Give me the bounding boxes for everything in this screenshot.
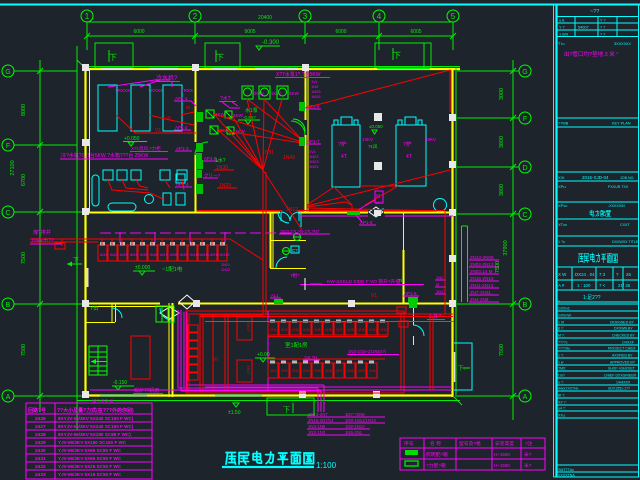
svg-text:2N13-2N7: 2N13-2N7 xyxy=(308,412,328,417)
svg-text:1:足2??: 1:足2?? xyxy=(583,295,601,301)
svg-text:2N11-2N13: 2N11-2N13 xyxy=(470,283,494,288)
svg-text:??大小及量?力式(在???外的你别): ??大小及量?力式(在???外的你别) xyxy=(57,407,134,414)
svg-text:7500: 7500 xyxy=(21,252,27,264)
svg-text:YJV-06/3KV 5X25 SC50 F WC: YJV-06/3KV 5X25 SC50 F WC xyxy=(58,464,122,469)
svg-text:1H10: 1H10 xyxy=(369,328,378,332)
svg-text:AH7: AH7 xyxy=(160,253,167,257)
svg-text:AH10: AH10 xyxy=(190,253,200,257)
svg-text:1N8-1N11/1N13: 1N8-1N11/1N13 xyxy=(345,418,376,423)
svg-text:1N?L2?L?N-2?L?N7: 1N?L2?L?N-2?L?N7 xyxy=(280,229,320,234)
svg-text:GXXnd:: GXXnd: xyxy=(558,307,570,311)
svg-text:XR1T: XR1T xyxy=(246,322,250,332)
svg-text:2430: 2430 xyxy=(35,448,46,454)
svg-text:2H1: 2H1 xyxy=(270,369,277,373)
svg-text:7 <: 7 < xyxy=(599,283,606,288)
svg-text:1N9-1N10: 1N9-1N10 xyxy=(345,424,365,429)
svg-text:AP1-2: AP1-2 xyxy=(175,125,188,130)
svg-text:1 : 100: 1 : 100 xyxy=(577,283,591,288)
svg-text:X W: X W xyxy=(558,272,567,277)
svg-text:A: A xyxy=(6,394,11,401)
svg-text:M?: M? xyxy=(376,200,382,205)
svg-text:DESIGNED BY: DESIGNED BY xyxy=(610,321,635,325)
svg-text:26: 26 xyxy=(626,272,631,277)
svg-text:1N3-2/16+2(1N54?): 1N3-2/16+2(1N54?) xyxy=(348,349,387,354)
svg-text:H+1500: H+1500 xyxy=(494,452,510,457)
svg-text:米?: 米? xyxy=(524,462,532,469)
svg-text:????Au: ????Au xyxy=(558,347,570,351)
svg-text:1N7-?2N8: 1N7-?2N8 xyxy=(345,412,365,417)
svg-text:M ?:: M ?: xyxy=(558,334,565,338)
svg-text:PXXUR TXX: PXXUR TXX xyxy=(608,185,629,189)
svg-text:2N4-2N8: 2N4-2N8 xyxy=(470,297,489,302)
svg-text:煤?排井: 煤?排井 xyxy=(33,229,51,236)
svg-text:1N5-2N1: 1N5-2N1 xyxy=(345,430,363,435)
svg-text:8XYJV-06/3KV 5X180 SC88 F WC): 8XYJV-06/3KV 5X180 SC88 F WC) xyxy=(58,432,131,437)
svg-text:?水?: ?水? xyxy=(220,95,231,102)
svg-text:照明配?箱: 照明配?箱 xyxy=(426,451,448,458)
svg-text:37900: 37900 xyxy=(503,240,509,255)
svg-text:1N2: 1N2 xyxy=(436,275,444,280)
svg-text:XPu: XPu xyxy=(558,184,566,189)
svg-text:1:100: 1:100 xyxy=(316,461,337,470)
svg-text:-XXXXXIN: -XXXXXIN xyxy=(608,204,625,208)
svg-text:2H7: 2H7 xyxy=(336,369,343,373)
svg-text:±0.000: ±0.000 xyxy=(135,265,150,271)
svg-text:20400: 20400 xyxy=(258,15,272,21)
svg-text:AH9: AH9 xyxy=(180,253,187,257)
svg-text:AH3: AH3 xyxy=(120,253,127,257)
svg-text:2H6: 2H6 xyxy=(325,369,332,373)
svg-text:5KW: 5KW xyxy=(289,91,300,96)
svg-text:~1配1电: ~1配1电 xyxy=(162,265,183,273)
svg-text:8000: 8000 xyxy=(21,104,27,116)
svg-text:AXXFIED BY: AXXFIED BY xyxy=(612,354,633,358)
svg-text:XXu:: XXu: xyxy=(558,414,566,418)
svg-text:AP1-1: AP1-1 xyxy=(175,96,188,101)
svg-text:T Iu: T Iu xyxy=(558,42,564,46)
svg-text:1 9t: 1 9t xyxy=(558,321,564,325)
svg-text:AH4: AH4 xyxy=(130,253,137,257)
svg-text:????c: ????c xyxy=(558,341,568,345)
svg-text:回路?号: 回路?号 xyxy=(28,407,46,414)
svg-text:5KW: 5KW xyxy=(233,113,244,118)
svg-text:1N26: 1N26 xyxy=(311,94,321,99)
svg-text:2431: 2431 xyxy=(35,456,46,462)
svg-text:± 8: ± 8 xyxy=(559,19,564,23)
svg-text:2427: 2427 xyxy=(35,424,46,430)
svg-text:1VL?H: 1VL?H xyxy=(304,355,317,360)
svg-text:CHXXF: CHXXF xyxy=(622,341,634,345)
svg-text:AH11: AH11 xyxy=(200,253,209,257)
svg-text:1H4: 1H4 xyxy=(303,328,310,332)
svg-text:2N02-2N13: 2N02-2N13 xyxy=(470,262,494,267)
svg-text:1H9: 1H9 xyxy=(358,328,365,332)
svg-text:1H3: 1H3 xyxy=(292,328,299,332)
svg-text:XXXXTNA: XXXXTNA xyxy=(558,474,575,478)
svg-text:XR2T: XR2T xyxy=(246,365,250,375)
svg-text:M: M xyxy=(436,282,439,287)
svg-text:M: M xyxy=(186,105,190,110)
svg-text:名 称: 名 称 xyxy=(430,440,441,447)
svg-text:2H2: 2H2 xyxy=(281,369,288,373)
svg-text:6700: 6700 xyxy=(21,174,27,186)
svg-text:2H5: 2H5 xyxy=(314,369,321,373)
svg-text:下: 下 xyxy=(73,257,79,264)
svg-text:13KV: 13KV xyxy=(362,137,373,142)
svg-text:?B: ?B xyxy=(398,278,404,283)
svg-text:1H11: 1H11 xyxy=(380,328,388,332)
svg-text:AP1-4: AP1-4 xyxy=(176,182,189,187)
svg-text:2: 2 xyxy=(193,12,198,21)
svg-text:TMX:: TMX: xyxy=(558,367,566,371)
svg-text:u ?:: u ?: xyxy=(558,381,564,385)
svg-text:2N03.14 M: 2N03.14 M xyxy=(470,269,493,274)
svg-text:1N4-1N5: 1N4-1N5 xyxy=(308,424,326,429)
svg-text:1H8: 1H8 xyxy=(347,328,354,332)
svg-text:AH1: AH1 xyxy=(100,253,107,257)
svg-text:±1.50: ±1.50 xyxy=(228,410,241,416)
svg-text:2H3: 2H3 xyxy=(292,369,299,373)
svg-text:序号: 序号 xyxy=(404,440,414,447)
svg-text:DXXWXX TITLE: DXXWXX TITLE xyxy=(612,240,639,244)
svg-text:8XYJV-06/3KV 5X240 SC150 F WC): 8XYJV-06/3KV 5X240 SC150 F WC) xyxy=(58,416,134,421)
svg-text:X?7水泵1?,?台5KW: X?7水泵1?,?台5KW xyxy=(276,71,321,78)
svg-text:V1: V1 xyxy=(371,293,377,299)
svg-text:?炉: ?炉 xyxy=(403,140,412,148)
svg-text:YJV-06/3KV 5X95 SC80 F WC: YJV-06/3KV 5X95 SC80 F WC xyxy=(58,448,122,453)
svg-text:2N16-2N15: 2N16-2N15 xyxy=(470,276,494,281)
svg-text:JOB NO.: JOB NO. xyxy=(620,176,634,180)
svg-text:GXXnW:: GXXnW: xyxy=(558,314,572,318)
svg-text:4: 4 xyxy=(377,12,382,21)
svg-text:C: C xyxy=(522,212,527,219)
svg-text:?注: ?注 xyxy=(525,440,533,447)
svg-text:B: B xyxy=(6,302,11,309)
svg-text:YJV-06/3KV 5X150 SC150 F WC: YJV-06/3KV 5X150 SC150 F WC xyxy=(58,440,127,445)
svg-text:F: F xyxy=(523,116,527,123)
svg-text:±0.050: ±0.050 xyxy=(369,124,383,129)
svg-text:54007: 54007 xyxy=(578,26,589,30)
svg-text:1 ?:: 1 ?: xyxy=(558,354,564,358)
svg-text:2H4: 2H4 xyxy=(303,369,310,373)
svg-text:1N12: 1N12 xyxy=(286,207,298,213)
svg-text:2015-XJD-04: 2015-XJD-04 xyxy=(582,175,609,180)
svg-text:AH8: AH8 xyxy=(170,253,177,257)
svg-text:VI: VI xyxy=(166,116,171,122)
svg-text:A: A xyxy=(523,394,528,401)
svg-text:VI: VI xyxy=(213,357,218,363)
svg-text:9005: 9005 xyxy=(244,29,255,35)
svg-text:4T: 4T xyxy=(406,154,412,160)
svg-text:t:m?: t:m? xyxy=(558,374,565,378)
svg-text:AH5: AH5 xyxy=(140,253,147,257)
svg-text:8 ?:: 8 ?: xyxy=(558,327,564,331)
svg-text:A #: A # xyxy=(558,283,565,288)
svg-text:1H7: 1H7 xyxy=(336,328,343,332)
svg-text:2N7-2N31: 2N7-2N31 xyxy=(470,290,491,295)
svg-text:G: G xyxy=(522,69,527,76)
svg-text:7500: 7500 xyxy=(499,344,505,356)
svg-text:C?: C? xyxy=(292,248,298,253)
svg-text:2432: 2432 xyxy=(35,464,46,470)
svg-text:XXt: XXt xyxy=(558,175,565,180)
svg-text:冷?水机?1,.1台5KW ?水箱???台 25KW: 冷?水机?1,.1台5KW ?水箱???台 25KW xyxy=(61,152,149,159)
svg-text:6000: 6000 xyxy=(133,29,144,35)
svg-text:V1: V1 xyxy=(155,128,161,134)
svg-text:1 ?u: 1 ?u xyxy=(558,240,565,244)
svg-text:+0.00: +0.00 xyxy=(257,352,270,358)
svg-text:AH12: AH12 xyxy=(210,253,220,257)
svg-text:-0.150: -0.150 xyxy=(113,380,127,386)
svg-text:n: n xyxy=(558,300,560,304)
svg-text:下: 下 xyxy=(283,406,290,414)
svg-text:AP1-9: AP1-9 xyxy=(404,291,417,296)
svg-text:4T: 4T xyxy=(341,154,347,160)
svg-text:?力配?箱: ?力配?箱 xyxy=(426,462,446,469)
svg-text:1: 1 xyxy=(85,12,90,21)
svg-text:-0.85?: -0.85? xyxy=(243,115,256,120)
svg-text:室1配1房: 室1配1房 xyxy=(285,341,308,349)
svg-text:YJV-06/3KV 5X95 SC90 F WC: YJV-06/3KV 5X95 SC90 F WC xyxy=(58,456,122,461)
svg-text:AP1-3: AP1-3 xyxy=(176,146,189,151)
svg-text:3XXX0XX: 3XXX0XX xyxy=(614,42,631,46)
svg-text:煤气手孔井: 煤气手孔井 xyxy=(92,398,114,405)
svg-text:1 w: 1 w xyxy=(558,361,564,365)
svg-text:2429: 2429 xyxy=(35,440,46,446)
svg-text:2433: 2433 xyxy=(35,472,46,478)
svg-text:Y 7: Y 7 xyxy=(559,26,565,30)
svg-text:下: 下 xyxy=(109,53,117,62)
svg-text:1N22: 1N22 xyxy=(221,268,230,272)
svg-text:1/H4XXX: 1/H4XXX xyxy=(616,381,631,385)
svg-text:PROJECT CHIEF: PROJECT CHIEF xyxy=(608,347,636,351)
svg-text:YJV-06/3KV 5X16 SC50 F WC: YJV-06/3KV 5X16 SC50 F WC xyxy=(58,472,122,477)
svg-text:?炉: ?炉 xyxy=(338,140,347,148)
svg-text:? 7: ? 7 xyxy=(600,33,605,37)
svg-text:3800: 3800 xyxy=(499,184,505,196)
svg-text:1水?: 1水? xyxy=(215,157,226,164)
svg-text:安装高度: 安装高度 xyxy=(495,440,514,447)
svg-text:6000: 6000 xyxy=(335,29,346,35)
svg-text:米?: 米? xyxy=(524,451,532,458)
svg-text:KW-XXKLD SIDE F VO 管升?升值: KW-XXKLD SIDE F VO 管升?升值 xyxy=(327,278,400,285)
svg-text:B: B xyxy=(523,302,528,309)
svg-text:水1泵: 水1泵 xyxy=(245,107,258,114)
svg-text:6005: 6005 xyxy=(410,29,421,35)
svg-text:8XYJV-06/3KV 5X240 SC150 F WC): 8XYJV-06/3KV 5X240 SC150 F WC) xyxy=(58,424,134,429)
svg-text:27100: 27100 xyxy=(10,160,16,175)
svg-text:G: G xyxy=(5,69,10,76)
svg-text:1N31: 1N31 xyxy=(262,150,274,156)
svg-text:下: 下 xyxy=(393,51,401,60)
svg-text:~??: ~?? xyxy=(590,9,599,15)
svg-text:1H1: 1H1 xyxy=(270,328,277,332)
svg-text:2H10: 2H10 xyxy=(369,369,378,373)
svg-text:H+1500: H+1500 xyxy=(494,463,510,468)
svg-text:2N15-2N7/14: 2N15-2N7/14 xyxy=(308,418,334,423)
svg-text:出?管口均?垫地.3 米 °: 出?管口均?垫地.3 米 ° xyxy=(564,50,618,58)
svg-text:1N2-1N3: 1N2-1N3 xyxy=(308,430,326,435)
svg-text:DX24 . 04: DX24 . 04 xyxy=(575,272,595,277)
svg-text:AH13: AH13 xyxy=(220,253,230,257)
svg-text:X?1混凤,?力柜: X?1混凤,?力柜 xyxy=(131,145,161,152)
svg-text:Bt ?:: Bt ?: xyxy=(558,394,565,398)
svg-text:XX ?:: XX ?: xyxy=(558,401,567,405)
svg-text:1H5: 1H5 xyxy=(314,328,321,332)
svg-text:XPvc: XPvc xyxy=(558,203,567,208)
svg-text:Y田: Y田 xyxy=(90,306,98,312)
svg-text:D: D xyxy=(522,165,527,172)
svg-text:CXXT: CXXT xyxy=(620,223,630,227)
svg-text:1 W4: 1 W4 xyxy=(559,33,568,37)
svg-text:Y ?: Y ? xyxy=(600,19,606,23)
svg-text:AH2: AH2 xyxy=(110,253,117,257)
svg-text:3: 3 xyxy=(303,12,308,21)
svg-text:F: F xyxy=(6,143,10,150)
svg-text:AP1-8: AP1-8 xyxy=(360,220,373,225)
svg-text:SMTTTAc: SMTTTAc xyxy=(558,468,574,472)
svg-text:AP1-7: AP1-7 xyxy=(307,139,320,144)
svg-text:1N43: 1N43 xyxy=(283,155,295,161)
svg-text:型号及?格: 型号及?格 xyxy=(459,440,481,447)
svg-text:CHECKED BY: CHECKED BY xyxy=(612,334,635,338)
svg-text:冷水机?: 冷水机? xyxy=(156,74,178,82)
svg-text:3800: 3800 xyxy=(499,136,505,148)
svg-text:3000: 3000 xyxy=(499,88,505,100)
svg-text:??WB: ??WB xyxy=(558,122,569,126)
svg-text:33KV: 33KV xyxy=(425,137,436,142)
svg-text:u4 ?:: u4 ?: xyxy=(558,407,566,411)
svg-text:APPROVED BY: APPROVED BY xyxy=(610,361,636,365)
svg-text:44xx?XX?Hu: 44xx?XX?Hu xyxy=(558,387,578,391)
svg-text:7500: 7500 xyxy=(21,344,27,356)
svg-text:DXXWN BY: DXXWN BY xyxy=(614,327,633,331)
svg-text:2H9: 2H9 xyxy=(358,369,365,373)
svg-text:7 3: 7 3 xyxy=(599,272,606,277)
svg-text:CHIEF DXXGINEER: CHIEF DXXGINEER xyxy=(604,374,637,378)
svg-text:2426: 2426 xyxy=(35,416,46,422)
svg-text:2H8: 2H8 xyxy=(347,369,354,373)
svg-text:10KV出??: 10KV出?? xyxy=(31,237,54,244)
svg-text:AL1: AL1 xyxy=(271,293,279,298)
svg-text:2N13-2N08: 2N13-2N08 xyxy=(470,255,494,260)
svg-text:TRXXX: TRXXX xyxy=(115,88,130,93)
svg-text:下: 下 xyxy=(216,53,224,62)
svg-text:TRXXX: TRXXX xyxy=(148,88,163,93)
svg-text:AH6: AH6 xyxy=(150,253,157,257)
svg-text:1N24: 1N24 xyxy=(309,164,319,169)
svg-text:C: C xyxy=(5,210,10,217)
svg-text:?相?: ?相? xyxy=(290,272,300,279)
svg-text:21/ 26: 21/ 26 xyxy=(618,283,631,288)
svg-text:1N21: 1N21 xyxy=(221,263,230,267)
svg-text:1H2: 1H2 xyxy=(281,328,288,332)
svg-text:XTxc: XTxc xyxy=(558,222,567,227)
svg-text:TRXX: TRXX xyxy=(181,88,193,93)
svg-text:1H6: 1H6 xyxy=(325,328,332,332)
svg-text:? ?: ? ? xyxy=(600,26,605,30)
svg-text:SHXP +DHXXET: SHXP +DHXXET xyxy=(608,367,636,371)
svg-text:SDV1551-1??: SDV1551-1?? xyxy=(608,387,630,391)
svg-text:5: 5 xyxy=(451,12,456,21)
svg-text:-0.300: -0.300 xyxy=(262,40,280,46)
svg-text:KEY PLAN: KEY PLAN xyxy=(612,122,631,126)
svg-text:2428: 2428 xyxy=(35,432,46,438)
